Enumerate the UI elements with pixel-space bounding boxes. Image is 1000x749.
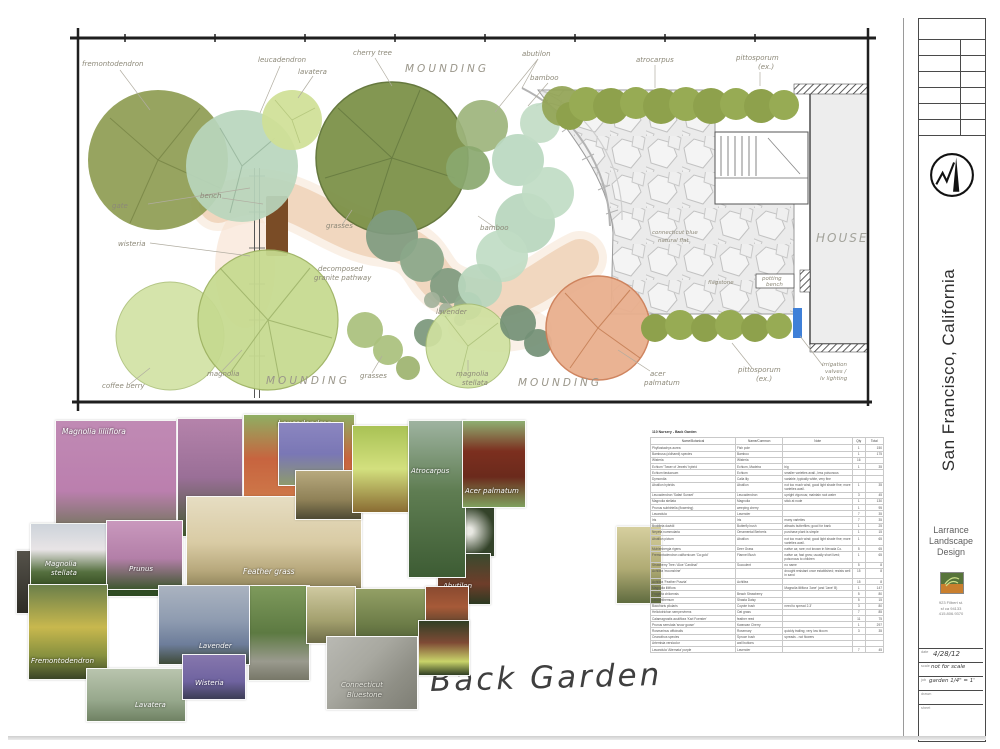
label-abutilon: abutilon	[522, 50, 551, 58]
label-lavatera: lavatera	[298, 68, 327, 76]
label-magnolia: magnolia	[207, 370, 239, 378]
photo-dark-foliage	[418, 620, 470, 676]
label-lv-lighting: lv lighting	[820, 376, 848, 382]
label-connecticut-blue: connecticut blue	[652, 230, 698, 236]
schedule-table: Name/BotanicalName/CommonNoteQtyTotal Ph…	[650, 437, 884, 653]
field-scale: scale not for scale	[919, 662, 983, 676]
wall-hatch-top	[794, 84, 868, 94]
photo-label: Bluestone	[347, 691, 382, 699]
plant-schedule: 110 Nursery - Back Garden Name/Botanical…	[650, 430, 888, 653]
schedule-body: Phyllostachys aureaFish pole1150Bambusa …	[651, 445, 884, 653]
photo-label: Wisteria	[195, 679, 224, 687]
label-pittosporum-top-ex: (ex.)	[758, 63, 774, 71]
label-bamboo-top: bamboo	[530, 74, 559, 82]
label-lavender: lavender	[436, 308, 468, 316]
firm-line: Landscape	[919, 536, 983, 547]
label-palmatum: palmatum	[643, 379, 680, 387]
photo-lavender: Lavender	[158, 585, 250, 665]
photo-atrocarpus: Atrocarpus	[408, 420, 466, 578]
sheet-bottom-edge	[8, 736, 986, 740]
schedule-header: Name/Common	[735, 438, 782, 445]
wall-hatch-bottom	[810, 344, 868, 352]
photo-wisteria: Wisteria	[182, 654, 246, 700]
field-value-handwritten: 4/28/12	[933, 650, 960, 658]
schedule-row: Fremontodendron californicum 'Ca gold'Fl…	[651, 552, 884, 562]
label-magnolia-stellata-2: stellata	[462, 379, 488, 387]
label-flagstone: flagstone	[708, 280, 734, 286]
label-gate: gate	[112, 202, 128, 210]
photo-label: stellata	[51, 569, 77, 577]
label-valves: valves /	[825, 369, 847, 375]
firm-line: Larrance	[919, 525, 983, 536]
label-atrocarpus: atrocarpus	[636, 56, 674, 64]
label-natural-flat: natural flat	[658, 238, 689, 244]
photo-acer-palmatum: Acer palmatum	[462, 420, 526, 508]
landscape-plan-sheet: fremontodendron leucadendron lavatera ch…	[0, 0, 1000, 749]
label-house: HOUSE	[816, 231, 868, 245]
field-sheet: sheet of sheets	[919, 704, 983, 749]
title-block-fields: date 4/28/12 scale not for scale job gar…	[919, 648, 983, 749]
wall-hatch-mid	[800, 270, 810, 292]
field-label: job	[921, 678, 926, 682]
location-title-vertical: San Francisco, California	[939, 170, 963, 570]
field-label: sheet	[921, 706, 930, 710]
label-mounding-top: MOUNDING	[405, 63, 489, 75]
label-bamboo-mid: bamboo	[480, 224, 509, 232]
label-irrigation: irrigation	[822, 362, 847, 368]
revision-grid	[919, 19, 985, 136]
photo-label: Lavatera	[135, 701, 166, 709]
schedule-row: Abutilon pictumAbutilonnot too much wind…	[651, 536, 884, 546]
photo-prunus: Prunus	[106, 520, 183, 590]
schedule-header-row: Name/BotanicalName/CommonNoteQtyTotal	[651, 438, 884, 445]
field-value-handwritten: garden 1/4" = 1'	[929, 678, 975, 684]
schedule-row: Achillea 'moonshine'drought resistant on…	[651, 568, 884, 578]
irrigation-valve-box	[793, 308, 802, 338]
label-granite-pathway: granite pathway	[314, 274, 372, 282]
schedule-header: Note	[783, 438, 853, 445]
firm-logo-thumbnail	[940, 572, 964, 594]
deck-and-stairs	[715, 132, 808, 204]
garden-plan-drawing: fremontodendron leucadendron lavatera ch…	[70, 28, 880, 413]
label-acer: acer	[650, 370, 666, 378]
schedule-header: Total	[865, 438, 883, 445]
firm-line: Design	[919, 547, 983, 558]
label-leucadendron: leucadendron	[258, 56, 306, 64]
photo-lavatera: Lavatera	[86, 668, 186, 722]
photo-label: Prunus	[129, 565, 153, 573]
photo-magnolia-stellata: Magnolia stellata	[30, 523, 110, 589]
label-mounding-bc: MOUNDING	[518, 377, 602, 389]
photo-label: Magnolia liliiflora	[62, 427, 126, 436]
photo-connecticut-bluestone: Connecticut Bluestone	[326, 636, 418, 710]
label-fremontodendron: fremontodendron	[82, 60, 143, 68]
label-pittosporum-top: pittosporum	[735, 54, 779, 62]
schedule-header: Qty	[852, 438, 865, 445]
photo-label: Connecticut	[341, 681, 383, 689]
label-pittosporum-b: pittosporum	[737, 366, 781, 374]
photo-label: Magnolia	[45, 560, 77, 568]
label-decomposed: decomposed	[318, 265, 363, 273]
label-grasses-bottom: grasses	[360, 372, 387, 380]
firm-address: 923 Filbert st. sf ca 94133 415.806.9370	[919, 600, 983, 617]
photo-garden-path	[248, 585, 310, 681]
photo-label: Feather grass	[243, 567, 295, 576]
field-label: scale	[921, 664, 930, 668]
schedule-row: Lavandula 'Alternata' purpleLavender745	[651, 647, 884, 653]
field-drawn: drawn	[919, 690, 983, 704]
field-label: drawn	[921, 692, 931, 696]
photo-label: Atrocarpus	[411, 467, 449, 475]
label-grasses-mid: grasses	[326, 222, 353, 230]
label-mounding-bl: MOUNDING	[266, 375, 350, 387]
label-wisteria: wisteria	[118, 240, 145, 248]
label-magnolia-stellata-1: magnolia	[456, 370, 488, 378]
photo-label: Lavender	[199, 642, 232, 650]
field-value-handwritten: not for scale	[931, 664, 965, 670]
label-pittosporum-b-ex: (ex.)	[756, 375, 772, 383]
photo-label: Fremontodendron	[31, 657, 94, 665]
field-job: job garden 1/4" = 1'	[919, 676, 983, 690]
label-potting-bench: bench	[766, 282, 783, 288]
schedule-row: Abutilon hybridsAbutilonnot too much win…	[651, 482, 884, 492]
photo-fremontodendron: Fremontodendron	[28, 584, 108, 680]
sheet-divider-line	[903, 18, 904, 740]
label-cherry-tree: cherry tree	[353, 49, 392, 57]
label-bench: bench	[200, 192, 221, 200]
photo-label: Acer palmatum	[465, 487, 519, 495]
field-label: date	[921, 650, 928, 654]
schedule-title: 110 Nursery - Back Garden	[652, 430, 888, 434]
address-line: 415.806.9370	[919, 611, 983, 617]
firm-name: Larrance Landscape Design	[919, 525, 983, 558]
field-date: date 4/28/12	[919, 648, 983, 662]
schedule-header: Name/Botanical	[651, 438, 736, 445]
photo-citrus-shrub	[352, 425, 410, 513]
label-coffee-berry: coffee berry	[102, 382, 146, 390]
